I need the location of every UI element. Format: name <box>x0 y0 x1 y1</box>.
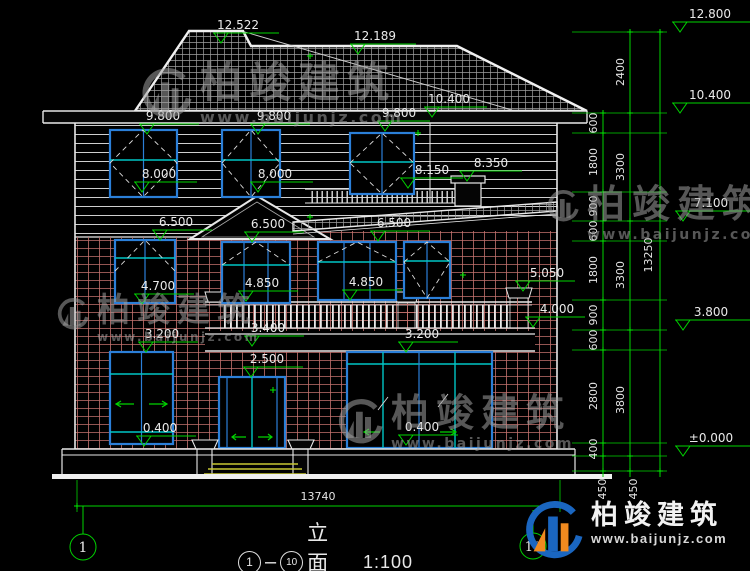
elev-sill: 0.400 <box>143 421 177 435</box>
dim-3300: 3300 <box>614 261 627 289</box>
entry-door <box>219 377 285 448</box>
plinth <box>62 449 575 475</box>
axis-to-bubble: 10 <box>280 551 303 571</box>
elev-balcony-rail: 5.050 <box>530 266 564 280</box>
elev-eave: 9.800 <box>382 106 416 120</box>
dim-600: 600 <box>587 330 600 351</box>
drawing-title: 1 – 10 立面图 1:100 <box>238 517 413 571</box>
elev-peak: 12.522 <box>217 18 259 32</box>
axis-number-left: 1 <box>79 540 88 556</box>
pier-cap <box>506 288 532 298</box>
balcony-pier <box>510 298 528 328</box>
window-3f-right <box>350 133 414 194</box>
elev-level: 10.400 <box>689 88 731 102</box>
dim-450: 450 <box>596 479 609 500</box>
axis-from-bubble: 1 <box>238 551 261 571</box>
elev-wing-eave: 10.400 <box>428 92 470 106</box>
axis-bubble-left: 1 <box>70 506 96 560</box>
elevation-drawing: 600 1800 900 600 1800 900 600 2800 400 4… <box>0 0 750 571</box>
dim-400: 400 <box>587 439 600 460</box>
elev-level: 3.800 <box>694 305 728 319</box>
ground-line <box>52 474 612 479</box>
dimension-chain: 600 1800 900 600 1800 900 600 2800 400 4… <box>572 29 667 500</box>
elev-head: 6.500 <box>251 217 285 231</box>
dim-13250: 13250 <box>642 238 655 273</box>
overall-width-dimension: 13740 <box>74 480 563 512</box>
dim-2400: 2400 <box>614 58 627 86</box>
elev-sill: 4.700 <box>141 279 175 293</box>
elev-sill: 0.400 <box>405 420 439 434</box>
elev-sill: 8.000 <box>142 167 176 181</box>
dim-900: 900 <box>587 196 600 217</box>
balcony-pier <box>398 303 415 328</box>
elev-sill: 4.850 <box>245 276 279 290</box>
title-text: 立面图 <box>307 517 353 571</box>
dim-900: 900 <box>587 305 600 326</box>
elev-upper-ridge: 12.189 <box>354 29 396 43</box>
chimney <box>451 176 485 206</box>
window-3f-middle <box>222 130 280 197</box>
elev-eave: 9.800 <box>146 109 180 123</box>
elev-terrace-rail: 8.150 <box>415 163 449 177</box>
dim-13740: 13740 <box>301 490 336 503</box>
elev-level: 7.100 <box>694 196 728 210</box>
dash: – <box>265 551 276 571</box>
title-scale: 1:100 <box>363 552 413 571</box>
elev-head: 6.500 <box>159 215 193 229</box>
elev-porch-slab: 3.400 <box>251 321 285 335</box>
dim-3300: 3300 <box>614 153 627 181</box>
dim-600: 600 <box>587 221 600 242</box>
elev-head: 3.200 <box>145 327 179 341</box>
dim-450: 450 <box>627 479 640 500</box>
elev-level: 12.800 <box>689 7 731 21</box>
window-2f-right-a <box>318 242 396 300</box>
window-3f-left <box>110 130 177 197</box>
dim-600: 600 <box>587 113 600 134</box>
main-roof <box>43 31 587 123</box>
window-2f-center <box>222 242 290 303</box>
entry-steps <box>204 464 306 474</box>
dim-2800: 2800 <box>587 382 600 410</box>
logo-brand: 柏竣建筑 <box>591 499 727 531</box>
elev-sill: 4.850 <box>349 275 383 289</box>
elev-eave: 9.800 <box>257 109 291 123</box>
dim-3800: 3800 <box>614 386 627 414</box>
site-logo: 柏竣建筑 www.baijunjz.com <box>521 499 727 565</box>
elev-head: 3.200 <box>405 327 439 341</box>
elev-chimney: 8.350 <box>474 156 508 170</box>
logo-url: www.baijunjz.com <box>591 531 727 546</box>
elev-sill: 8.000 <box>258 167 292 181</box>
elev-balcony-slab: 4.000 <box>540 302 574 316</box>
elev-door-head: 2.500 <box>250 352 284 366</box>
cad-viewport: 600 1800 900 600 1800 900 600 2800 400 4… <box>0 0 750 571</box>
elev-level: ±0.000 <box>689 431 733 445</box>
brand-logo-icon <box>521 499 583 565</box>
dim-1800: 1800 <box>587 148 600 176</box>
elev-head: 6.500 <box>377 216 411 230</box>
dim-1800: 1800 <box>587 256 600 284</box>
window-2f-right-b <box>404 242 450 298</box>
